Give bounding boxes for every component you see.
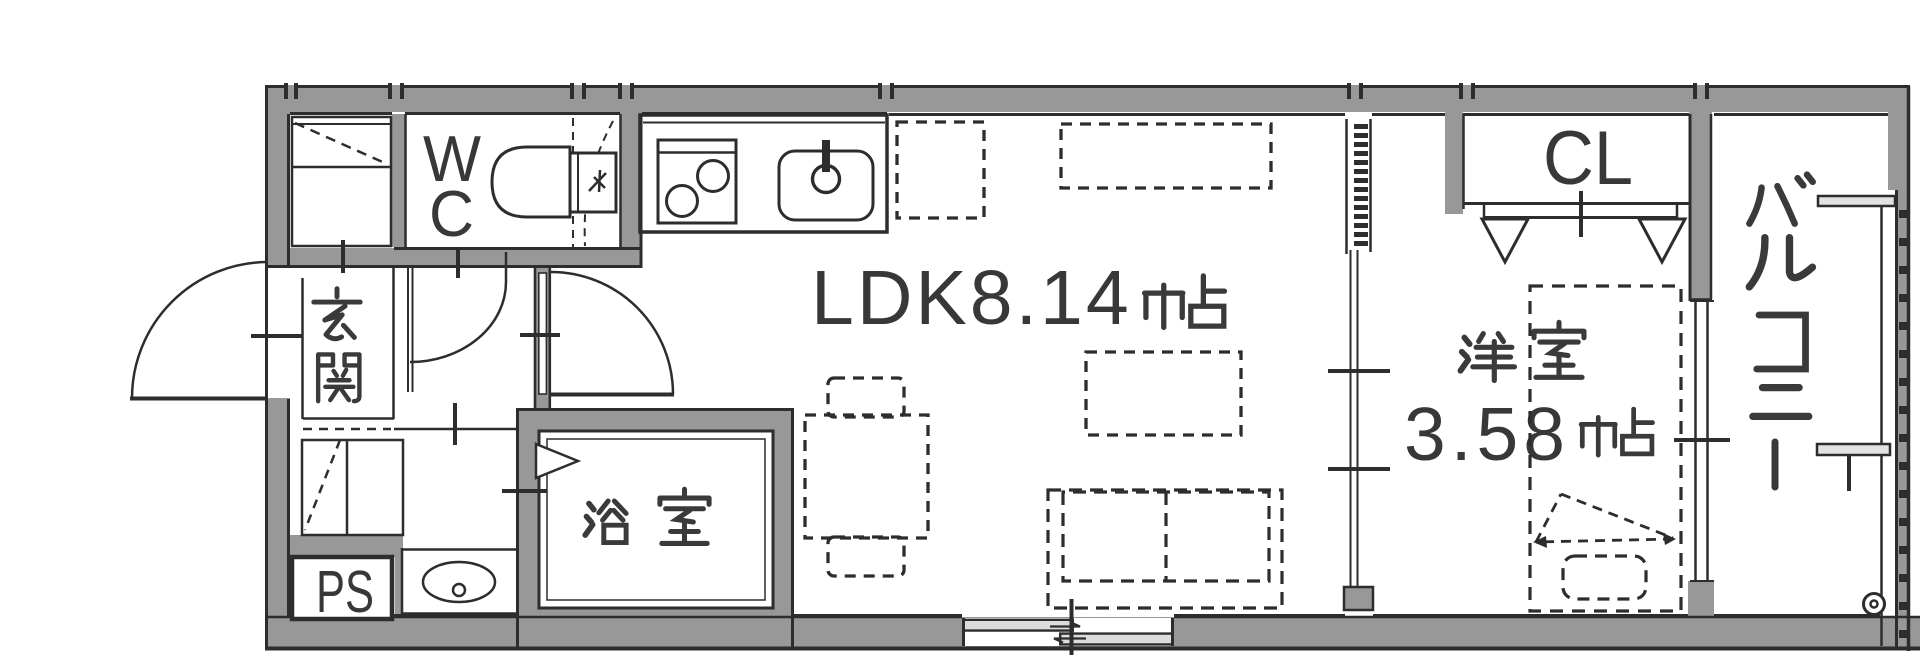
svg-text:C: C xyxy=(429,177,474,250)
svg-text:3.58: 3.58 xyxy=(1404,392,1570,476)
svg-text:CL: CL xyxy=(1543,116,1633,201)
svg-text:PS: PS xyxy=(316,559,374,625)
svg-text:LDK8.14: LDK8.14 xyxy=(811,255,1132,341)
